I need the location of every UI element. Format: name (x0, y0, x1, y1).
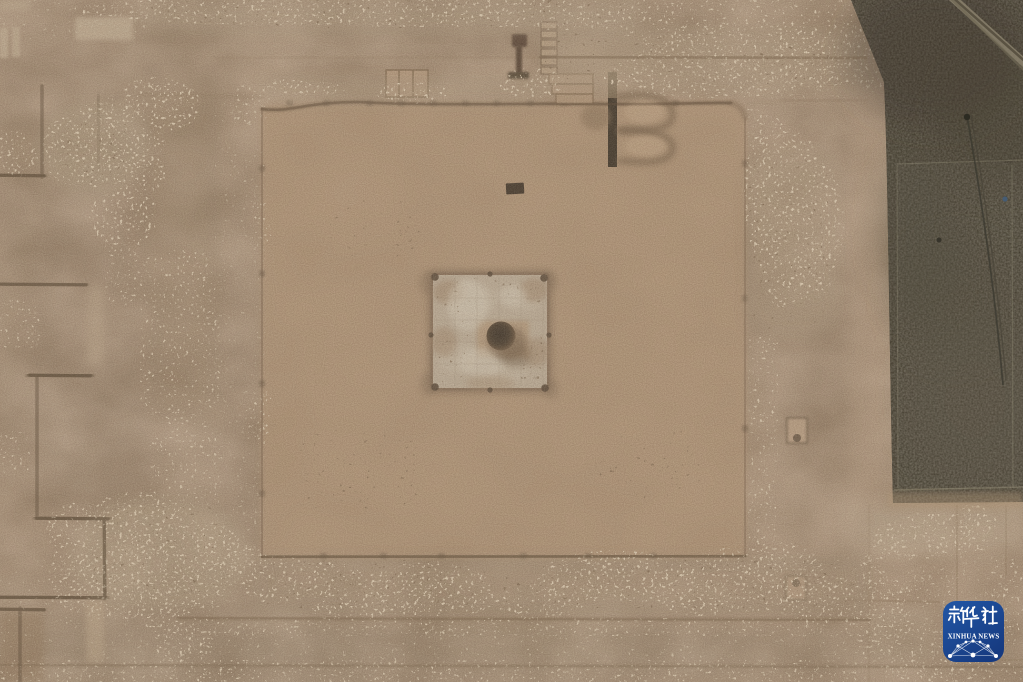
svg-text:XINHUA NEWS: XINHUA NEWS (948, 634, 1000, 641)
